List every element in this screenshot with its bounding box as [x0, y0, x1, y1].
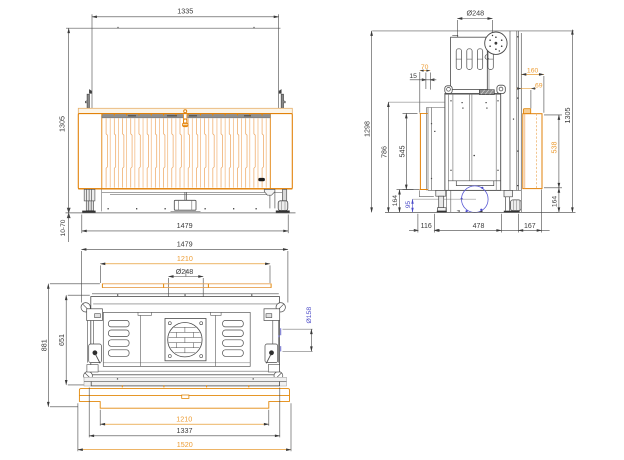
svg-text:Ø158: Ø158: [306, 307, 313, 324]
svg-text:164: 164: [392, 195, 399, 207]
svg-text:1210: 1210: [177, 254, 193, 263]
svg-text:478: 478: [473, 223, 485, 230]
svg-text:Ø248: Ø248: [176, 267, 194, 276]
svg-text:1305: 1305: [563, 108, 572, 124]
svg-text:116: 116: [421, 223, 432, 230]
svg-text:1210: 1210: [176, 415, 192, 424]
svg-text:1337: 1337: [177, 426, 193, 435]
svg-text:95: 95: [405, 201, 412, 209]
svg-text:1335: 1335: [177, 6, 193, 15]
svg-text:1298: 1298: [363, 121, 372, 137]
svg-text:Ø248: Ø248: [467, 9, 485, 18]
svg-text:1479: 1479: [177, 240, 193, 249]
svg-text:160: 160: [527, 68, 539, 75]
svg-text:1479: 1479: [177, 221, 193, 230]
svg-text:1520: 1520: [177, 440, 193, 449]
svg-text:881: 881: [39, 339, 48, 351]
svg-text:164: 164: [552, 196, 559, 208]
svg-text:786: 786: [379, 146, 388, 158]
svg-text:15: 15: [409, 73, 417, 80]
svg-text:10-70: 10-70: [60, 219, 67, 236]
svg-text:538: 538: [550, 142, 559, 154]
svg-text:69: 69: [535, 82, 543, 89]
svg-text:545: 545: [397, 146, 406, 158]
svg-text:651: 651: [57, 334, 66, 346]
svg-text:167: 167: [524, 223, 536, 230]
svg-text:1305: 1305: [58, 116, 67, 132]
svg-text:70: 70: [421, 64, 429, 71]
